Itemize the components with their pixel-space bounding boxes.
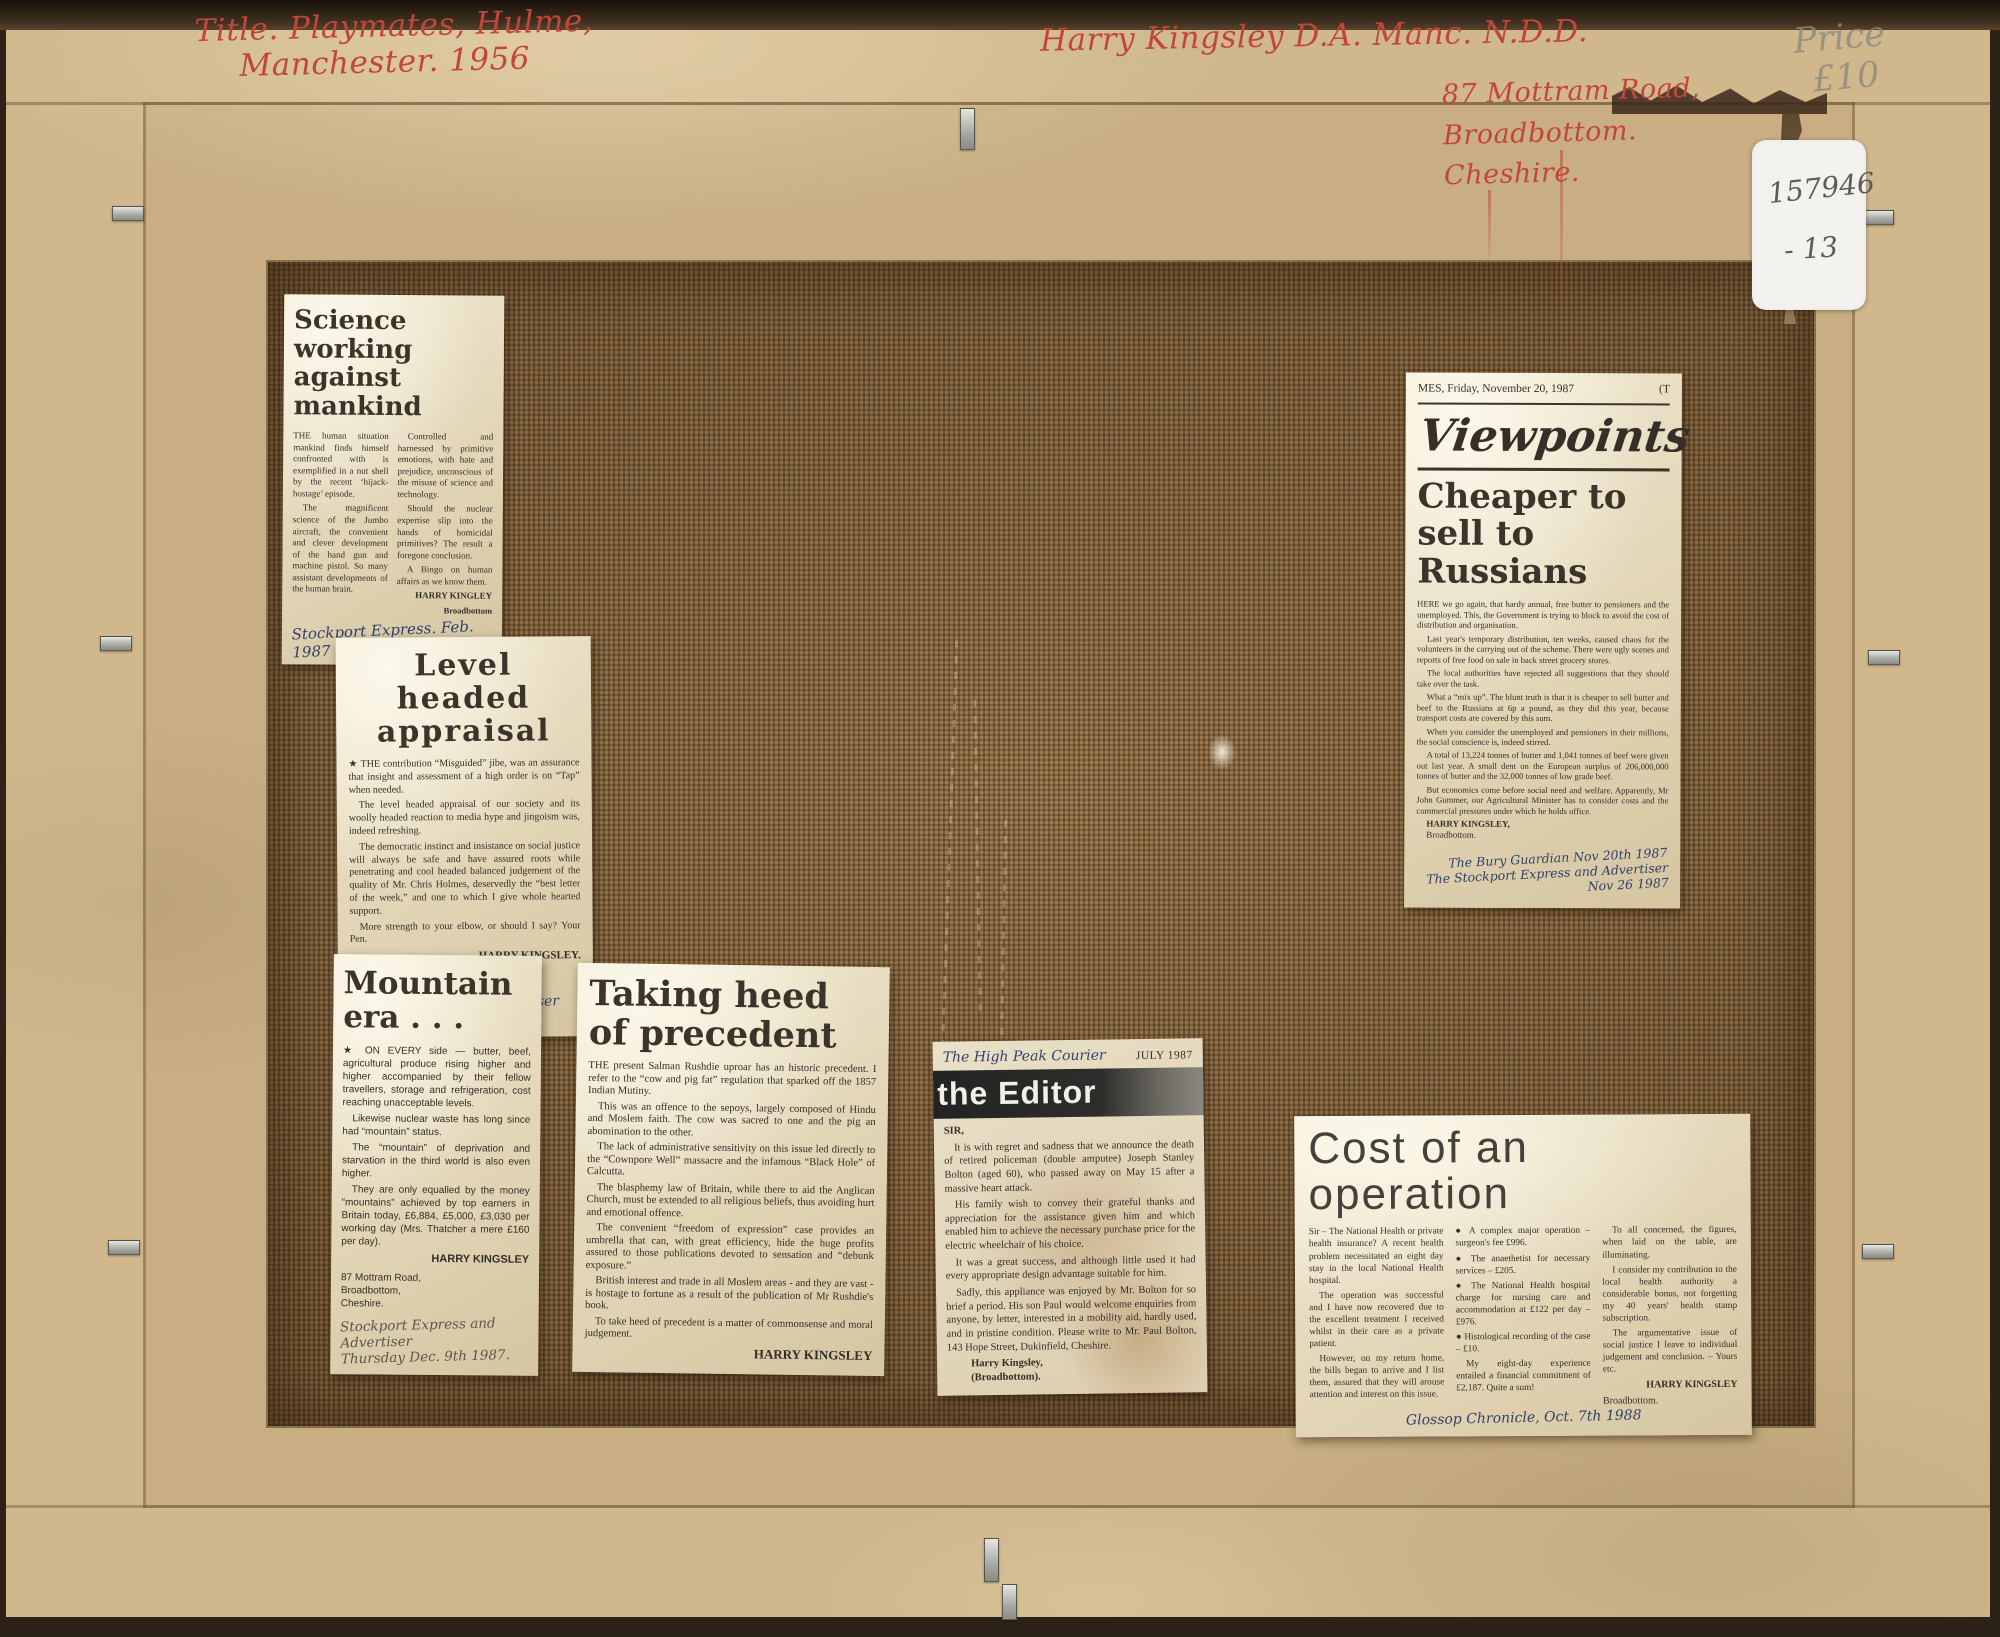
source-annotation: The Bury Guardian Nov 20th 1987 The Stoc… — [1415, 845, 1669, 902]
byline: HARRY KINGSLEY — [341, 1251, 529, 1267]
article-body: HERE we go again, that hardy annual, fre… — [1416, 599, 1669, 842]
article-paragraph: When you consider the unemployed and pen… — [1417, 726, 1669, 748]
sticker-suffix: - 13 — [1783, 228, 1867, 267]
glazing-clip — [100, 636, 132, 651]
plaster-spot — [1208, 734, 1236, 770]
article-paragraph: The democratic instinct and insistance o… — [349, 840, 581, 918]
article-paragraph: HERE we go again, that hardy annual, fre… — [1417, 599, 1669, 631]
article-paragraph: A total of 13,224 tonnes of butter and 1… — [1417, 750, 1669, 782]
article-paragraph: The convenient “freedom of expression” c… — [586, 1222, 875, 1276]
article-paragraph: The level headed appraisal of our societ… — [349, 799, 580, 839]
ink-drip — [1488, 190, 1491, 270]
article-paragraph: Should the nuclear expertise slip into t… — [397, 503, 493, 561]
clipping-viewpoints: MES, Friday, November 20, 1987 (T Viewpo… — [1404, 373, 1682, 909]
cardboard-flap-right — [1852, 102, 1990, 1508]
price-annotation: Price £10 — [1792, 14, 1890, 102]
article-body: SIR, It is with regret and sadness that … — [944, 1121, 1198, 1385]
article-body: THE human situation mankind finds himsel… — [292, 431, 493, 616]
article-paragraph: The operation was successful and I have … — [1309, 1289, 1444, 1350]
article-bullet: ● Histological recording of the case – £… — [1456, 1331, 1591, 1356]
printed-date: JULY 1987 — [1136, 1049, 1193, 1062]
byline-place: Broadbottom — [397, 605, 493, 617]
article-paragraph: It is with regret and sadness that we an… — [944, 1138, 1195, 1196]
byline-address: Cheshire. — [341, 1298, 529, 1313]
article-paragraph: Likewise nuclear waste has long since ha… — [342, 1112, 530, 1140]
source-annotation: The High Peak Courier — [943, 1047, 1106, 1065]
glazing-clip — [984, 1538, 999, 1582]
salutation: SIR, — [944, 1121, 1194, 1138]
article-paragraph: I consider my contribution to the local … — [1602, 1263, 1737, 1324]
source-annotation: Stockport Express and Advertiser Thursda… — [340, 1315, 529, 1368]
article-paragraph: His family wish to convey their grateful… — [945, 1195, 1196, 1253]
clipping-headline: Science working against mankind — [293, 306, 494, 422]
cardboard-flap-left — [6, 102, 146, 1508]
clipping-topline: The High Peak Courier JULY 1987 — [943, 1046, 1193, 1065]
handwritten-artist-address: 87 Mottram Road, Broadbottom. Cheshire. — [1441, 69, 1702, 197]
article-paragraph: The lack of administrative sensitivity o… — [587, 1141, 875, 1183]
byline: HARRY KINGSLEY — [1603, 1378, 1738, 1392]
article-paragraph: The argumentative issue of social justic… — [1603, 1327, 1738, 1376]
article-paragraph: To take heed of precedent is a matter of… — [585, 1315, 873, 1344]
article-bullet: ● The anaethetist for necessary services… — [1456, 1252, 1591, 1277]
article-paragraph: Last year's temporary distribution, ten … — [1417, 633, 1669, 665]
glazing-clip — [1862, 1244, 1894, 1259]
byline: HARRY KINGLEY — [397, 590, 493, 602]
article-paragraph: They are only equalled by the money “mou… — [341, 1183, 530, 1250]
sticker-number: 157946 — [1767, 167, 1868, 210]
article-paragraph: THE present Salman Rushdie uproar has an… — [588, 1060, 876, 1102]
glazing-clip — [1862, 210, 1894, 225]
article-paragraph: THE human situation mankind finds himsel… — [293, 431, 389, 501]
article-paragraph: The blasphemy law of Britain, while ther… — [586, 1181, 874, 1223]
clipping-headline: Cheaper to sell to Russians — [1417, 479, 1669, 592]
artist-address-line1: 87 Mottram Road, — [1441, 69, 1700, 116]
article-paragraph: ★ THE contribution “Misguided” jibe, was… — [348, 757, 579, 797]
article-paragraph: However, on my return home, the bills be… — [1309, 1353, 1444, 1402]
article-paragraph: To all concerned, the figures, when laid… — [1602, 1224, 1737, 1261]
byline: HARRY KINGSLEY — [584, 1343, 872, 1362]
clipping-science-working: Science working against mankind THE huma… — [282, 294, 505, 666]
article-bullet: ● A complex major operation – surgeon's … — [1455, 1225, 1590, 1250]
article-bullet: ● The National Health hospital charge fo… — [1456, 1279, 1591, 1328]
editor-banner: the Editor — [933, 1067, 1204, 1119]
clipping-mountain-era: Mountain era . . . ★ ON EVERY side — but… — [330, 954, 542, 1376]
inventory-sticker: 157946 - 13 — [1752, 140, 1866, 310]
byline: HARRY KINGSLEY, — [1426, 819, 1668, 831]
article-paragraph: What a “mix up”. The blunt truth is that… — [1417, 692, 1669, 724]
article-paragraph: Sir – The National Health or private hea… — [1309, 1226, 1444, 1287]
article-paragraph: My eight-day experience entailed a finan… — [1456, 1358, 1591, 1395]
viewpoints-masthead-wrap: Viewpoints — [1418, 403, 1670, 472]
article-paragraph: The “mountain” of deprivation and starva… — [342, 1141, 530, 1182]
clipping-headline: Level headed appraisal — [348, 648, 580, 749]
clipping-headline: Cost of an operation — [1308, 1124, 1736, 1219]
byline-place: (Broadbottom). — [971, 1368, 1197, 1385]
article-paragraph: Sadly, this appliance was enjoyed by Mr.… — [946, 1283, 1197, 1355]
byline-place: Broadbottom. — [1426, 830, 1668, 842]
clipping-headline: Taking heed of precedent — [589, 975, 878, 1056]
clipping-headline: Mountain era . . . — [343, 966, 532, 1036]
article-paragraph: ★ ON EVERY side — butter, beef, agricult… — [342, 1044, 531, 1111]
article-paragraph: This was an offence to the sepoys, large… — [587, 1100, 875, 1142]
artist-address-line3: Cheshire. — [1444, 150, 1703, 197]
artist-address-line2: Broadbottom. — [1443, 109, 1702, 156]
article-body: ★ ON EVERY side — butter, beef, agricult… — [341, 1044, 531, 1312]
glazing-clip — [1868, 650, 1900, 665]
article-paragraph: A Bingo on human affairs as we know them… — [397, 564, 493, 588]
source-annotation: Glossop Chronicle, Oct. 7th 1988 — [1310, 1405, 1738, 1431]
clipping-taking-heed: Taking heed of precedent THE present Sal… — [572, 963, 890, 1376]
glazing-clip — [960, 108, 975, 150]
article-body: THE present Salman Rushdie uproar has an… — [584, 1060, 876, 1363]
newspaper-dateline: MES, Friday, November 20, 1987 (T — [1418, 383, 1670, 396]
article-paragraph: It was a great success, and although lit… — [946, 1253, 1196, 1284]
article-paragraph: But economics come before social need an… — [1416, 784, 1668, 816]
article-paragraph: The magnificent science of the Jumbo air… — [292, 503, 388, 596]
article-paragraph: More strength to your elbow, or should I… — [350, 920, 581, 947]
article-paragraph: Controlled and harnessed by primitive em… — [397, 431, 493, 501]
article-paragraph: The local authorities have rejected all … — [1417, 668, 1669, 690]
viewpoints-masthead: Viewpoints — [1416, 411, 1670, 463]
glazing-clip — [1002, 1584, 1017, 1620]
clipping-cost-operation: Cost of an operation Sir – The National … — [1294, 1114, 1752, 1438]
clipping-editor-letter: The High Peak Courier JULY 1987 the Edit… — [933, 1038, 1208, 1395]
glazing-clip — [112, 206, 144, 221]
article-body: Sir – The National Health or private hea… — [1309, 1224, 1738, 1409]
price-line2: £10 — [1811, 54, 1890, 100]
handwritten-title: Title. Playmates, Hulme, Manchester. 195… — [194, 3, 594, 85]
article-paragraph: British interest and trade in all Moslem… — [585, 1275, 873, 1317]
glazing-clip — [108, 1240, 140, 1255]
